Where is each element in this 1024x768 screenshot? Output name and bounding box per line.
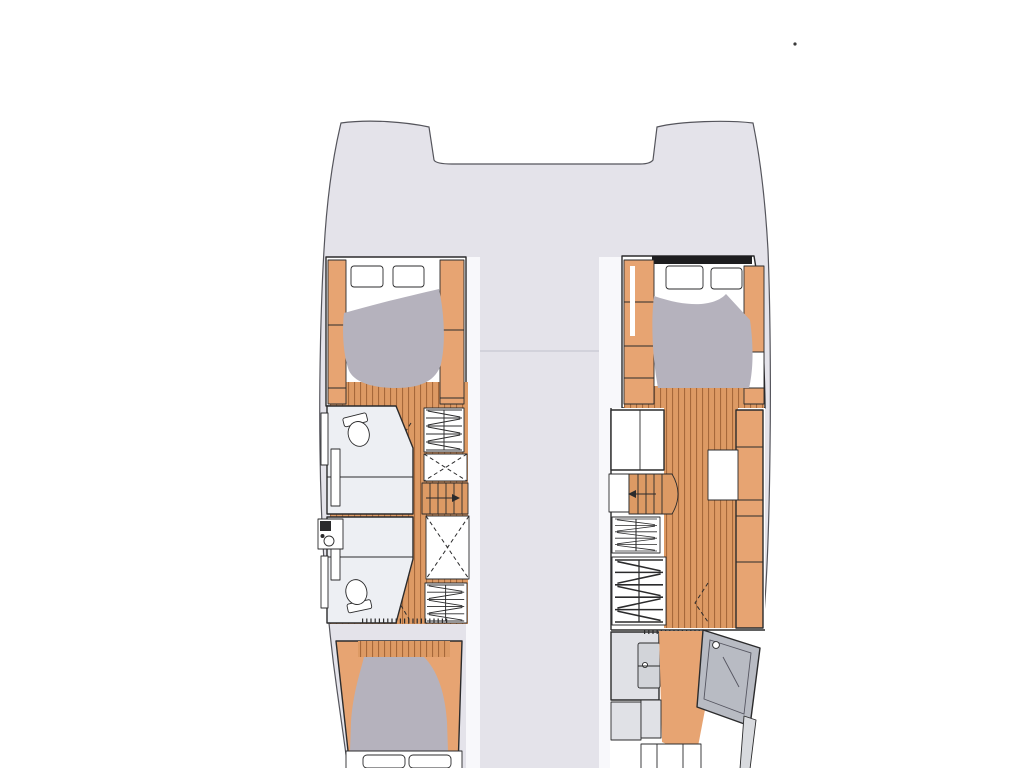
shower-head xyxy=(713,642,720,649)
stairs-symbol xyxy=(422,483,468,514)
shelf-highlight xyxy=(630,266,635,336)
port-aft-cabin xyxy=(336,621,462,768)
port-companionway-stairs xyxy=(422,483,468,514)
desk xyxy=(708,450,738,500)
cabinet xyxy=(641,700,661,738)
pillow xyxy=(409,755,451,768)
bed-symbol xyxy=(350,657,448,751)
shelf-column xyxy=(624,260,654,404)
vanity-counter xyxy=(331,449,340,506)
window-symbol xyxy=(666,266,703,289)
washbasin-unit xyxy=(638,643,660,688)
washbasin-unit xyxy=(318,519,343,549)
cabinet xyxy=(611,410,664,470)
starboard-companionway-stairs xyxy=(628,474,678,514)
aft-step-lockers xyxy=(641,744,701,768)
port-lower-head xyxy=(318,517,413,623)
basin-drain xyxy=(642,662,647,667)
hull-window xyxy=(321,556,328,608)
cabinet xyxy=(609,474,629,512)
basin-drain xyxy=(321,534,325,538)
starboard-hull xyxy=(609,256,766,768)
hull-window xyxy=(321,413,328,465)
deck-plan-canvas xyxy=(0,0,1024,768)
suite-floor xyxy=(664,408,738,628)
pillow xyxy=(363,755,405,768)
starboard-aft-head xyxy=(610,630,766,768)
window-symbol xyxy=(711,268,742,289)
hull-side-furniture xyxy=(736,410,763,628)
stray-mark xyxy=(793,42,796,45)
cabinet xyxy=(611,702,641,740)
window-symbol xyxy=(351,266,383,287)
port-upper-head xyxy=(321,406,413,514)
aft-cabin-floor xyxy=(358,641,450,657)
deck-plan-svg xyxy=(0,0,1024,768)
forward-bulkhead xyxy=(652,256,752,264)
starboard-mid-section xyxy=(609,408,765,630)
faucet-block xyxy=(320,521,331,531)
window-symbol xyxy=(393,266,424,287)
starboard-forward-cabin xyxy=(622,256,765,408)
bed-symbol xyxy=(652,294,752,388)
